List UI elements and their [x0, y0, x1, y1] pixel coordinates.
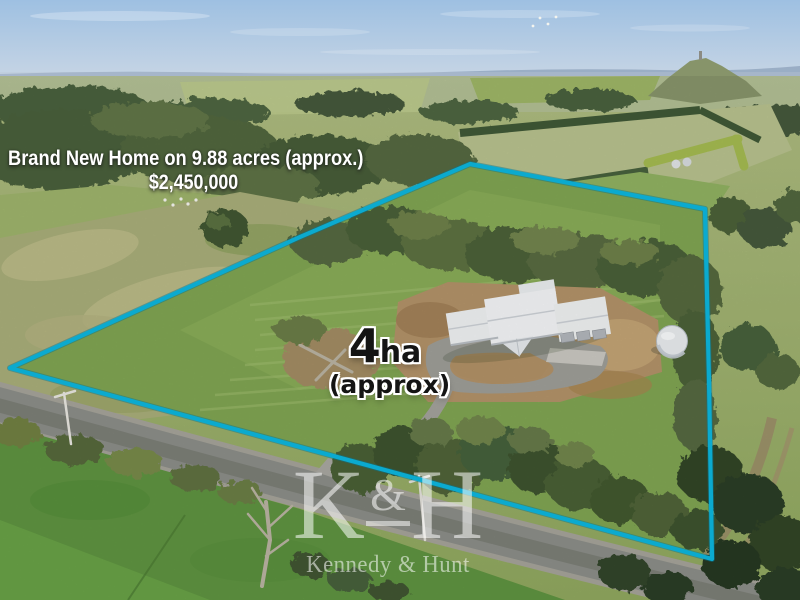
aerial-property-photo: Brand New Home on 9.88 acres (approx.) $…: [0, 0, 800, 600]
photo-grain: [0, 76, 800, 600]
photo-scene: [0, 0, 800, 600]
